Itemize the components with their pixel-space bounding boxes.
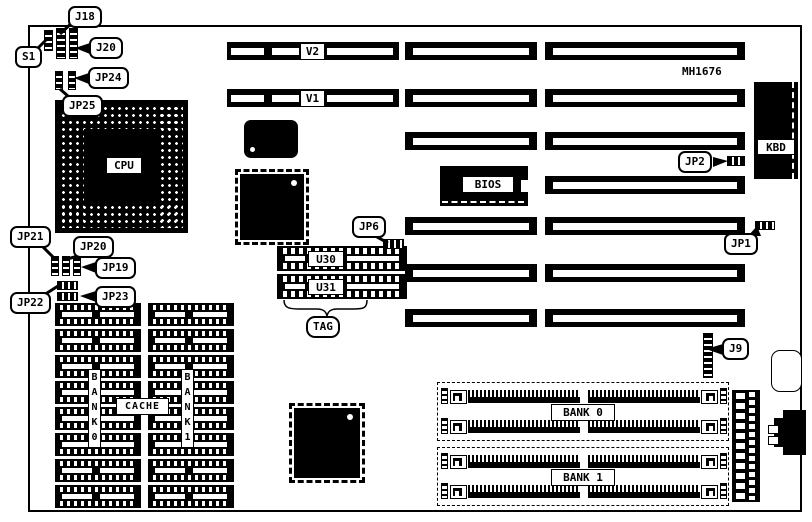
callout-s1: S1 [15, 46, 42, 68]
callout-jp20: JP20 [73, 236, 114, 258]
callout-j20: J20 [89, 37, 123, 59]
callout-jp21: JP21 [10, 226, 51, 248]
callout-j9: J9 [722, 338, 749, 360]
callout-jp25: JP25 [62, 95, 103, 117]
callout-jp1: JP1 [724, 233, 758, 255]
callout-jp22: JP22 [10, 292, 51, 314]
callout-tails [34, 20, 761, 355]
callout-jp23: JP23 [95, 286, 136, 308]
callout-j18: J18 [68, 6, 102, 28]
callout-jp24: JP24 [88, 67, 129, 89]
callout-jp6: JP6 [352, 216, 386, 238]
callout-jp2: JP2 [678, 151, 712, 173]
callout-jp19: JP19 [95, 257, 136, 279]
motherboard-diagram: V2 V1 MH1676 KBD CPU [0, 0, 812, 522]
callout-tag: TAG [306, 316, 340, 338]
